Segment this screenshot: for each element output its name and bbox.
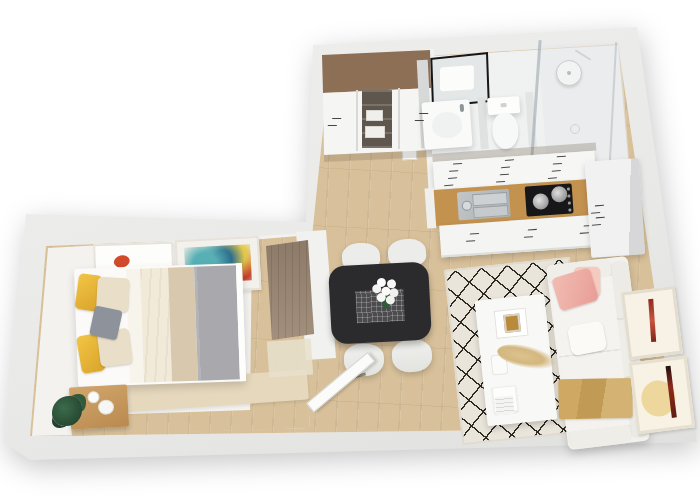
vanity-basin xyxy=(431,111,463,139)
cooktop-knob-icon xyxy=(567,194,570,197)
cooktop-knob-icon xyxy=(567,188,570,191)
cooktop xyxy=(525,183,574,216)
wall-art-frame xyxy=(629,356,695,435)
sink-faucet-icon xyxy=(461,200,472,211)
wardrobe-mat xyxy=(267,339,313,378)
plate-icon xyxy=(98,399,115,415)
vanity-faucet-icon xyxy=(460,104,465,112)
double-bed xyxy=(74,263,246,387)
flower-bouquet xyxy=(377,278,386,287)
wall-art-frame xyxy=(621,286,683,360)
wardrobe xyxy=(264,240,314,340)
flower-stems xyxy=(382,293,391,308)
cabinet-handle-icon xyxy=(496,174,509,183)
shower-head-icon xyxy=(556,60,582,86)
gold-throw-blanket xyxy=(558,378,633,419)
closet-door-seam xyxy=(398,88,400,149)
fridge-handle-icon xyxy=(592,217,605,226)
fridge-handle-icon xyxy=(591,205,604,214)
mini-art-frame xyxy=(503,313,521,333)
closet-shelf-box xyxy=(365,126,385,138)
cooking-pot-icon xyxy=(532,193,549,210)
cabinet-handle-icon xyxy=(553,156,566,165)
cabinet-handle-icon xyxy=(466,233,479,242)
decor-tray xyxy=(494,308,529,339)
cup-icon xyxy=(87,391,100,404)
tall-cabinet-fridge xyxy=(585,158,646,258)
cooktop-knob-icon xyxy=(568,201,571,204)
dining-table xyxy=(328,261,432,344)
mirror-reflection xyxy=(440,65,474,91)
floor-plan-render xyxy=(0,0,700,500)
toilet-bowl xyxy=(491,112,519,150)
art-red-stroke xyxy=(648,299,656,343)
closet-shelf-box xyxy=(366,110,383,121)
table-runner xyxy=(355,289,405,323)
closet-door-seam xyxy=(356,90,358,151)
cabinet-handle-icon xyxy=(548,170,561,179)
blanket-gray xyxy=(194,265,240,380)
cabinet-handle-icon xyxy=(501,159,514,168)
shower-head-center xyxy=(567,71,571,75)
cooktop-knob-icon xyxy=(568,208,571,211)
cabinet-handle-icon xyxy=(444,177,457,186)
flush-button-icon xyxy=(500,103,506,107)
blanket-beige xyxy=(168,267,198,382)
cooking-pot-icon xyxy=(551,186,568,203)
coffee-table xyxy=(475,294,558,427)
bathroom-vanity-sink xyxy=(421,99,472,149)
cabinet-handle-icon xyxy=(524,229,537,238)
sink-basin xyxy=(472,192,508,206)
sink-basin xyxy=(473,205,509,218)
cabinet-handle-icon xyxy=(449,163,462,172)
magazine xyxy=(495,396,515,416)
shower-drain-icon xyxy=(570,124,580,134)
counter-end-panel xyxy=(425,188,437,229)
kitchen-sink xyxy=(457,189,511,221)
duvet-cream xyxy=(140,268,172,383)
closet-open-gap xyxy=(362,90,392,148)
